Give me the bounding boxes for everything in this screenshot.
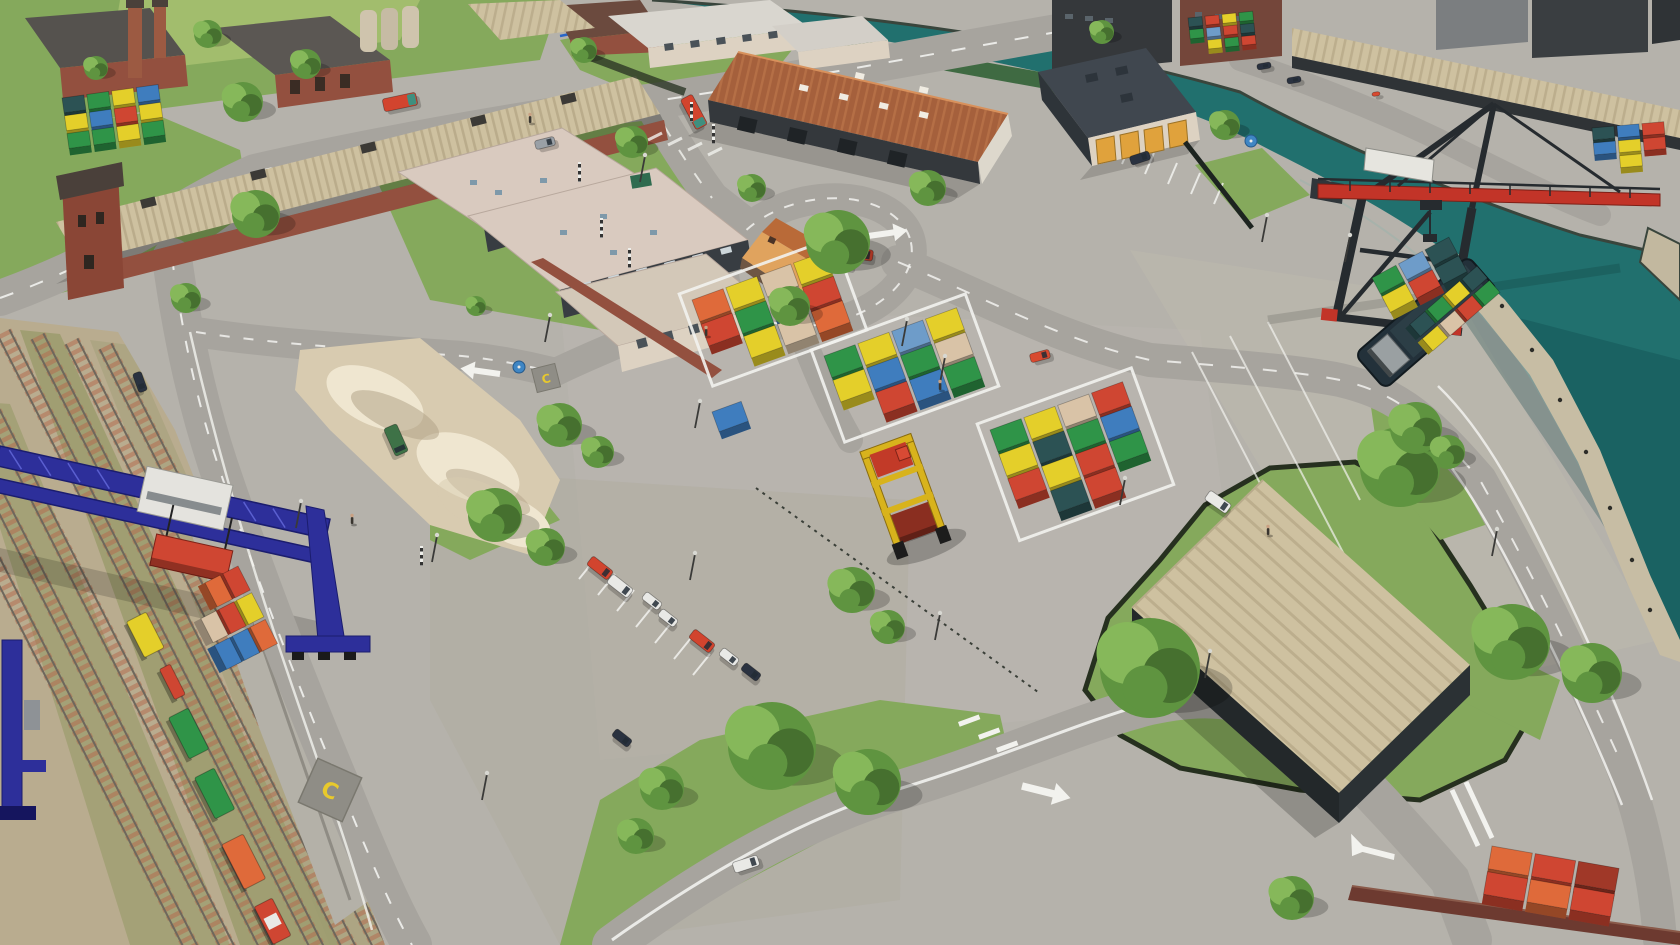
crossing-pole bbox=[600, 218, 603, 238]
chimney bbox=[128, 0, 142, 78]
blue-parasol bbox=[1245, 135, 1257, 147]
crossing-pole bbox=[712, 124, 715, 144]
chimney bbox=[154, 0, 166, 58]
crossing-pole bbox=[628, 248, 631, 268]
silos bbox=[360, 6, 419, 52]
crossing-pole bbox=[420, 546, 423, 566]
aerial-render: C C bbox=[0, 0, 1680, 945]
storage-pad-2: C bbox=[531, 363, 560, 392]
crossing-pole bbox=[578, 162, 581, 182]
trolley bbox=[1420, 200, 1442, 210]
blue-parasol bbox=[513, 361, 525, 373]
terminal-3d-scene: C C bbox=[0, 0, 1680, 945]
crossing-pole bbox=[690, 102, 693, 122]
crane-foot bbox=[1321, 308, 1338, 322]
